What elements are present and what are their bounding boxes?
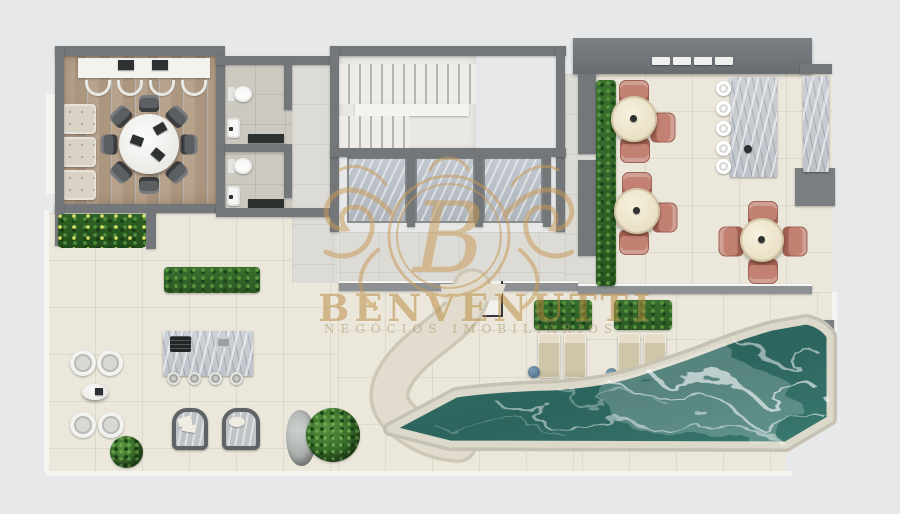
floor-plan-canvas: B BENVENUTTI NEGÓCIOS IMOBILIÁRIOS	[0, 0, 900, 514]
pool-and-path	[0, 0, 900, 514]
stone-path-cap	[440, 284, 506, 302]
